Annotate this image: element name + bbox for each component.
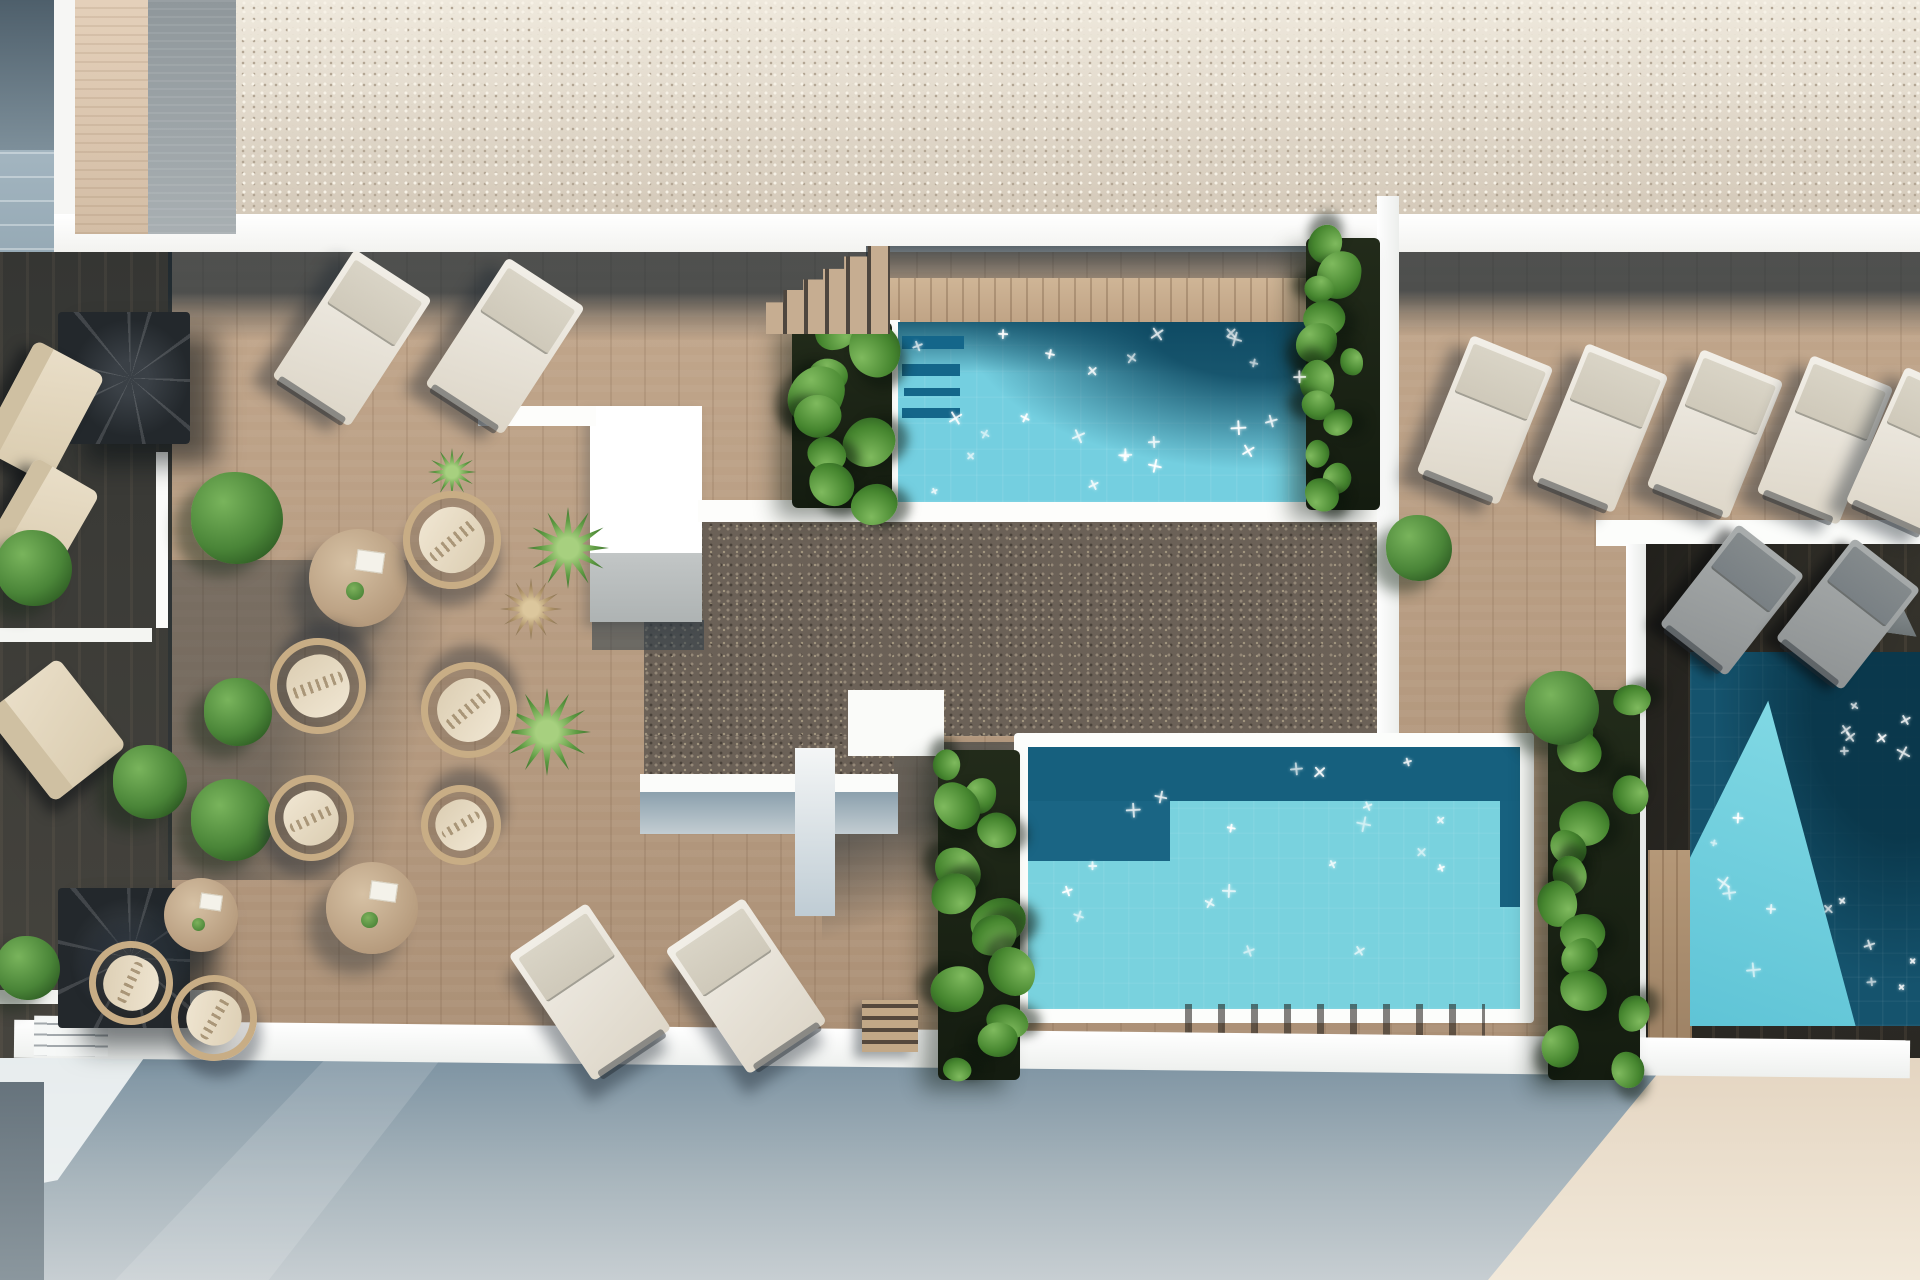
rattan-lounge-chair: [254, 761, 368, 875]
vine-leaf: [1619, 996, 1651, 1032]
water-sparkle: [1293, 370, 1307, 384]
water-sparkle: [1402, 757, 1413, 768]
water-sparkle: [1893, 743, 1913, 763]
water-sparkle: [1821, 902, 1836, 917]
rattan-lounge-chair: [256, 624, 379, 747]
water-sparkle: [1085, 363, 1100, 378]
water-sparkle: [1147, 436, 1160, 449]
water-sparkle: [1866, 976, 1876, 986]
water-sparkle: [1153, 789, 1169, 805]
water-sparkle: [1146, 458, 1163, 475]
water-sparkle: [1907, 956, 1917, 966]
water-sparkle: [1118, 447, 1132, 461]
rattan-lounge-chair: [406, 770, 515, 879]
water-sparkle: [1238, 441, 1258, 461]
bush-plant: [0, 530, 72, 606]
palm-plant: [428, 448, 476, 496]
water-sparkle: [1249, 357, 1260, 368]
water-sparkle: [1018, 412, 1032, 426]
water-sparkle: [1898, 712, 1913, 727]
water-sparkle: [1896, 981, 1906, 991]
water-sparkle: [978, 428, 992, 442]
water-sparkle: [1147, 324, 1167, 344]
bush-plant: [191, 472, 283, 564]
sun-lounger-shaded: [1660, 524, 1805, 677]
water-sparkle: [1721, 885, 1737, 901]
water-sparkle: [1242, 943, 1257, 958]
water-sparkle: [1745, 961, 1762, 978]
water-sparkle: [1289, 761, 1304, 776]
water-sparkle: [1202, 895, 1217, 910]
water-sparkle: [945, 407, 966, 428]
water-sparkle: [1848, 700, 1860, 712]
water-sparkle: [1088, 861, 1097, 870]
water-sparkle: [1355, 814, 1373, 832]
sun-lounger: [665, 898, 827, 1075]
water-sparkle: [1060, 884, 1074, 898]
water-sparkle: [1327, 858, 1338, 869]
outdoor-sofa: [0, 658, 127, 803]
water-sparkle: [930, 485, 940, 495]
water-sparkle: [1766, 903, 1777, 914]
rattan-lounge-chair: [401, 642, 536, 777]
palm-plant: [500, 578, 562, 640]
water-sparkle: [1263, 413, 1279, 429]
water-sparkle: [911, 339, 925, 353]
water-sparkle: [1862, 938, 1876, 952]
bush-plant: [191, 779, 273, 861]
sun-lounger: [509, 903, 672, 1082]
water-sparkle: [1086, 478, 1101, 493]
water-sparkle: [1044, 349, 1056, 361]
bush-plant: [113, 745, 187, 819]
bush-plant: [1525, 671, 1599, 745]
terrace-furniture-layer: [0, 0, 1920, 1280]
water-sparkle: [1434, 814, 1447, 827]
water-sparkle: [998, 328, 1008, 338]
sun-lounger: [272, 249, 432, 427]
water-sparkle: [1873, 730, 1889, 746]
water-sparkle: [1732, 812, 1744, 824]
bush-plant: [204, 678, 272, 746]
water-sparkle: [1362, 800, 1375, 813]
water-sparkle: [1227, 823, 1237, 833]
water-sparkle: [1124, 350, 1140, 366]
palm-plant: [527, 507, 609, 589]
round-table: [309, 529, 407, 627]
wooden-stairs: [766, 246, 890, 334]
water-sparkle: [1071, 908, 1086, 923]
water-sparkle: [1125, 803, 1140, 818]
sun-lounger: [425, 257, 585, 435]
round-table: [164, 878, 238, 952]
water-sparkle: [1709, 838, 1718, 847]
water-sparkle: [1352, 943, 1368, 959]
water-sparkle: [1310, 763, 1329, 782]
rooftop-terrace-render: [0, 0, 1920, 1280]
water-sparkle: [1069, 427, 1088, 446]
water-sparkle: [1222, 884, 1237, 899]
water-sparkle: [965, 449, 978, 462]
bush-plant: [1386, 515, 1452, 581]
water-sparkle: [1836, 896, 1848, 908]
water-sparkle: [1414, 844, 1430, 860]
water-sparkle: [1840, 746, 1850, 756]
bush-plant: [0, 936, 60, 1000]
water-sparkle: [1436, 863, 1447, 874]
wooden-steps: [862, 1000, 918, 1052]
water-sparkle: [1230, 420, 1247, 437]
sun-lounger-shaded: [1776, 538, 1920, 691]
round-table: [326, 862, 418, 954]
